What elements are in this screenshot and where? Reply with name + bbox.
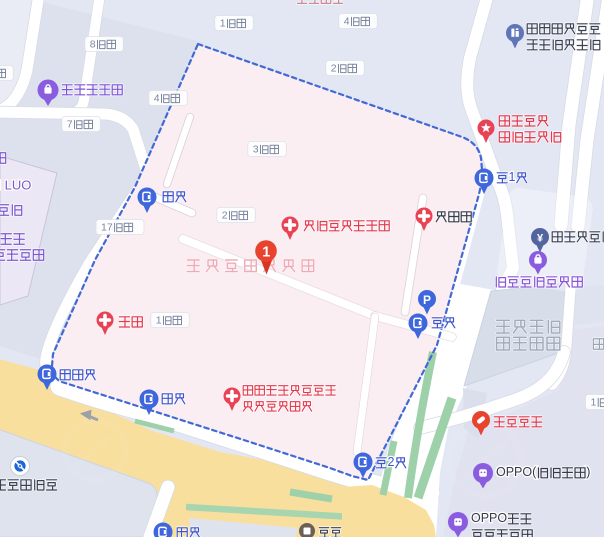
- svg-text:3: 3: [253, 143, 259, 155]
- svg-text:1: 1: [156, 314, 162, 326]
- svg-text:1: 1: [509, 170, 516, 184]
- svg-text:17: 17: [101, 221, 113, 233]
- svg-text:1: 1: [262, 245, 270, 261]
- svg-text:4: 4: [154, 92, 160, 104]
- svg-text:P: P: [423, 293, 431, 307]
- svg-text:1: 1: [220, 17, 226, 29]
- svg-text:OPPO(: OPPO(: [496, 465, 537, 479]
- svg-text:4: 4: [344, 15, 350, 27]
- svg-text:OPPO: OPPO: [471, 511, 507, 525]
- svg-text:NI LUO: NI LUO: [0, 178, 31, 193]
- svg-text:2: 2: [222, 209, 228, 221]
- svg-text:2: 2: [331, 62, 337, 74]
- svg-text:): ): [586, 465, 590, 479]
- svg-text:8: 8: [90, 38, 96, 50]
- svg-text:7: 7: [67, 118, 73, 130]
- svg-text:1: 1: [591, 396, 597, 408]
- svg-text:¥: ¥: [537, 233, 544, 245]
- svg-text:2: 2: [388, 455, 395, 469]
